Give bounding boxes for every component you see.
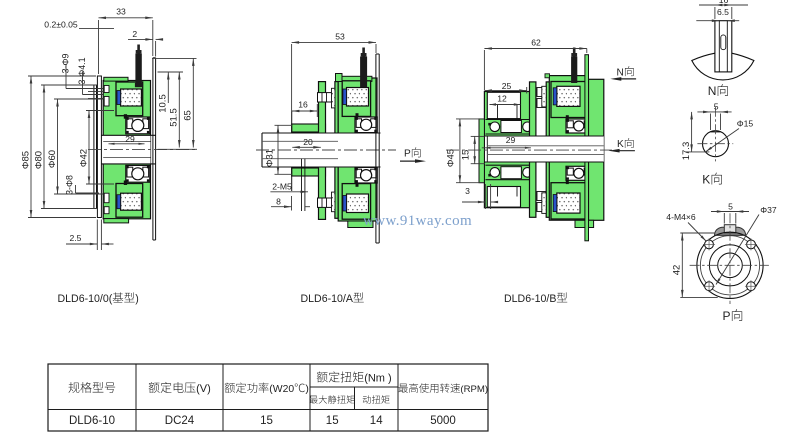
svg-text:2.5: 2.5	[70, 233, 82, 243]
svg-text:17.3: 17.3	[681, 142, 692, 161]
svg-text:Φ80: Φ80	[34, 151, 45, 169]
svg-text:5: 5	[714, 101, 719, 111]
svg-text:15: 15	[260, 415, 273, 427]
svg-text:29: 29	[506, 135, 516, 145]
svg-text:Φ15: Φ15	[737, 119, 754, 129]
svg-text:Φ42: Φ42	[79, 149, 90, 167]
svg-text:3-Φ8: 3-Φ8	[65, 175, 75, 195]
svg-text:3: 3	[465, 186, 470, 196]
svg-text:3-Φ4.1: 3-Φ4.1	[77, 57, 87, 84]
svg-text:14: 14	[370, 415, 383, 427]
svg-text:2: 2	[132, 29, 137, 39]
svg-text:2-M5: 2-M5	[272, 182, 292, 192]
svg-text:): )	[305, 384, 308, 395]
svg-text:42: 42	[671, 265, 682, 276]
svg-text:20: 20	[303, 137, 313, 147]
svg-text:DLD6-10/A: DLD6-10/A	[301, 293, 354, 305]
svg-text:3-Φ9: 3-Φ9	[61, 54, 71, 74]
svg-text:6.5: 6.5	[717, 7, 729, 17]
svg-text:DLD6-10: DLD6-10	[69, 415, 115, 427]
svg-text:Φ37: Φ37	[760, 205, 777, 215]
svg-text:33: 33	[116, 7, 126, 17]
svg-text:16: 16	[719, 0, 729, 5]
svg-text:65: 65	[183, 110, 194, 121]
svg-text:5: 5	[728, 202, 733, 212]
svg-text:K: K	[617, 139, 624, 150]
svg-text:15: 15	[461, 150, 472, 161]
svg-text:53: 53	[335, 32, 345, 42]
svg-text:(RPM): (RPM)	[460, 384, 488, 395]
svg-text:4-M4×6: 4-M4×6	[666, 212, 696, 222]
svg-text:16: 16	[298, 100, 308, 110]
svg-text:29: 29	[125, 134, 135, 144]
svg-text:Φ85: Φ85	[21, 151, 32, 169]
svg-text:10.5: 10.5	[158, 94, 169, 113]
svg-text:5000: 5000	[430, 415, 456, 427]
svg-text:N: N	[708, 84, 717, 98]
svg-text:Φ31: Φ31	[265, 149, 276, 167]
svg-text:P: P	[404, 149, 411, 160]
svg-text:(W20: (W20	[269, 384, 294, 395]
svg-text:(V): (V)	[196, 383, 211, 395]
svg-text:51.5: 51.5	[169, 108, 180, 127]
svg-text:Φ45: Φ45	[446, 149, 457, 167]
svg-text:25: 25	[502, 81, 512, 91]
svg-text:P: P	[723, 309, 731, 323]
svg-text:DLD6-10/B: DLD6-10/B	[504, 293, 556, 305]
svg-text:DLD6-10/0(: DLD6-10/0(	[58, 293, 113, 305]
svg-text:12: 12	[497, 94, 507, 104]
svg-text:0.2±0.05: 0.2±0.05	[44, 20, 78, 30]
svg-text:): )	[135, 293, 139, 305]
svg-text:K: K	[702, 173, 710, 187]
svg-text:62: 62	[531, 38, 541, 48]
svg-text:8: 8	[276, 197, 281, 207]
svg-text:www.91way.com: www.91way.com	[363, 213, 472, 229]
svg-text:DC24: DC24	[165, 415, 195, 427]
svg-text:Φ60: Φ60	[47, 150, 58, 168]
svg-text:N: N	[617, 67, 624, 78]
svg-text:15: 15	[326, 415, 339, 427]
svg-text:(Nm ): (Nm )	[364, 373, 392, 385]
